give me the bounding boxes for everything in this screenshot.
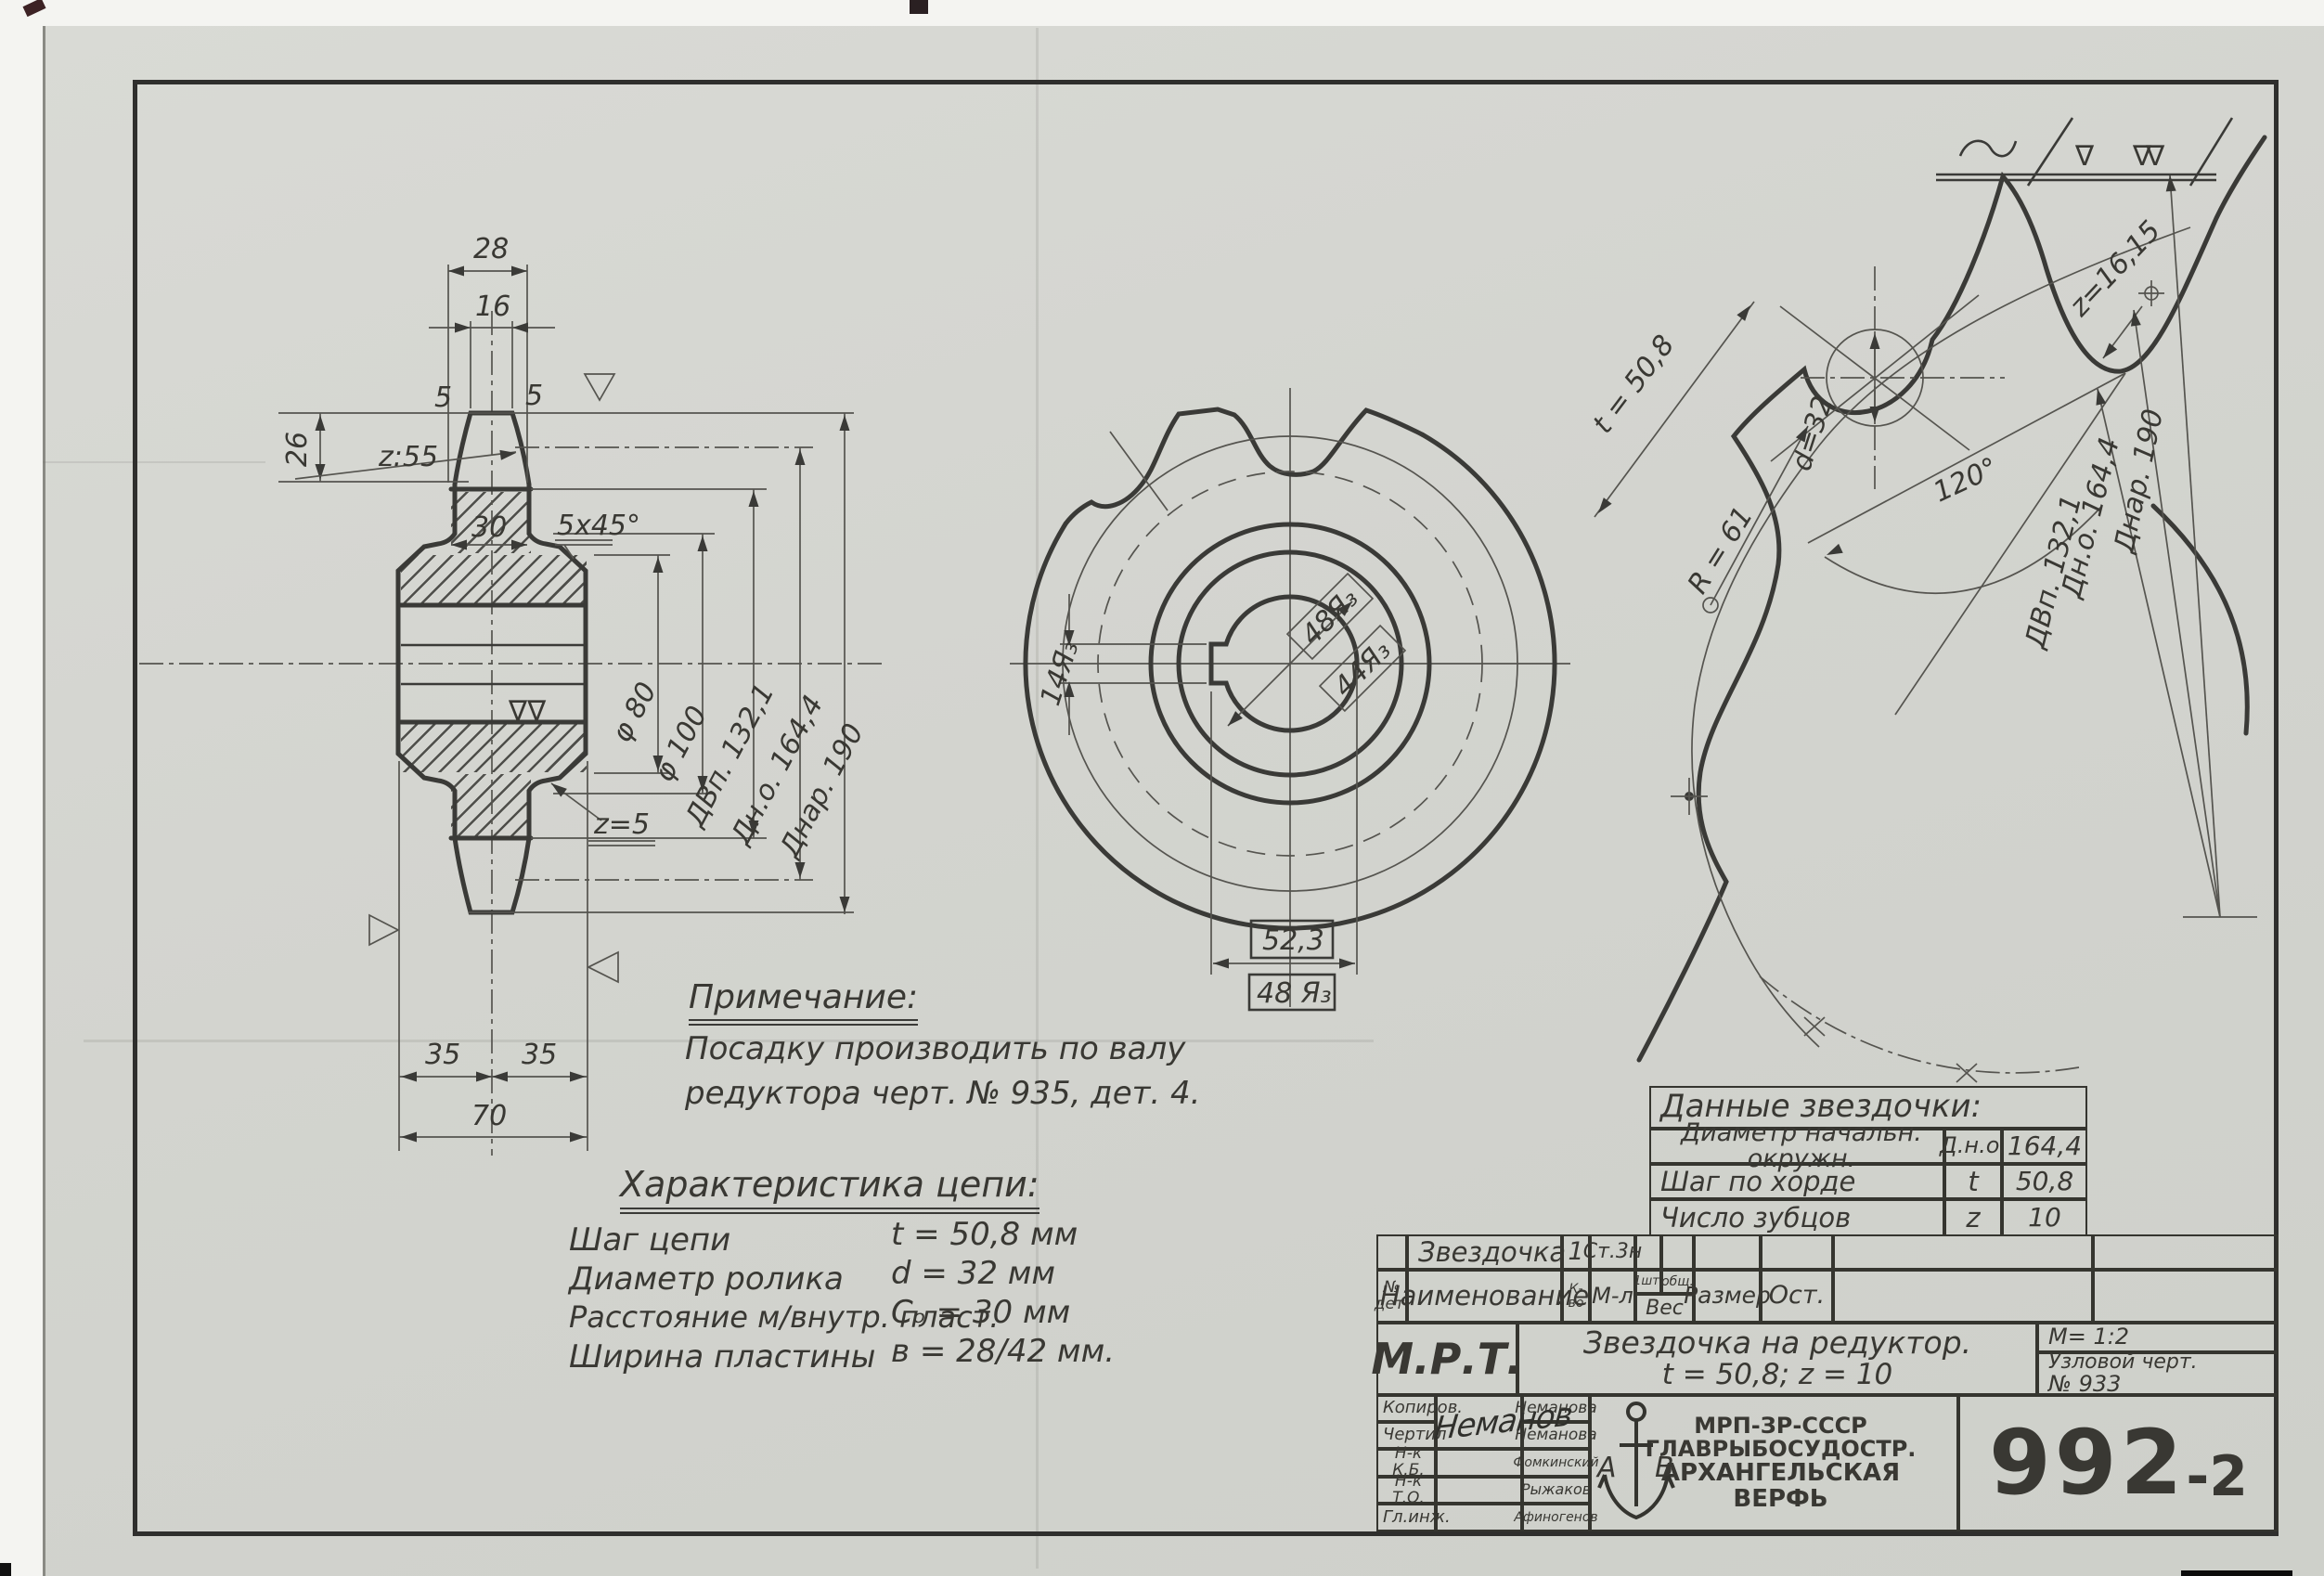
tb-number-cell: 992 -2 [1958,1395,2279,1531]
tb-cell-blank [1436,1449,1522,1477]
dim-70: 70 [471,1100,507,1132]
tb-role: Копиров. [1376,1395,1436,1422]
blueprint-sheet: 28 16 26 z:55 30 5x45° 5 5 [0,0,2324,1576]
dim-26: 26 [281,432,314,467]
corner-glyph-right: 5 [525,380,543,412]
logo-line: АРХАНГЕЛЬСКАЯ [1646,1461,1917,1486]
dim-28: 28 [473,233,509,265]
tb-name: Афиногенов [1522,1504,1590,1531]
tb-cell-blank [1694,1234,1761,1270]
dim-35-left: 35 [425,1039,460,1071]
tb-cell-blank [1833,1270,2093,1323]
tb-node-number: № 933 [2048,1373,2198,1396]
tb-part-material: Ст.3н [1590,1234,1635,1270]
bore-roughness-mark: ∇∇ [508,695,547,728]
rest-surfaces-icon [1960,141,2016,156]
tooth-profile-view: d=32 t = 50,8 R = 61 120° z=16,15 [1586,137,2265,1082]
boxed-dim-52-3: 52,3 [1262,924,1324,957]
tb-node-ref: Узловой черт. № 933 [2037,1352,2279,1395]
chain-row-label: Диаметр ролика [569,1260,844,1298]
shipyard-anchor-logo: А В [1592,1397,1681,1523]
logo-line: ГЛАВРЫБОСУДОСТР. [1646,1438,1917,1461]
logo-line: МРП-ЗР-СССР [1646,1415,1917,1438]
dim-30: 30 [471,511,507,544]
profile-dia-naruzh: Днар. 190 [2108,407,2170,558]
radius-fillet: z=5 [593,808,650,841]
note-line-1: Посадку производить по валу [685,1030,1185,1067]
tb-emblem-cell: А В МРП-ЗР-СССР ГЛАВРЫБОСУДОСТР. АРХАНГЕ… [1590,1395,1958,1531]
tb-cell-blank [1376,1234,1407,1270]
tb-cell-blank [1436,1504,1522,1531]
chain-row-value: t = 50,8 мм [891,1216,1078,1253]
tb-scale: М= 1:2 [2037,1323,2279,1352]
tb-role: Гл.инж. [1376,1504,1436,1531]
chain-row-value: Cₒ = 30 мм [891,1294,1070,1331]
chain-row-label: Ширина пластины [569,1338,875,1376]
tb-cell-blank [2093,1270,2279,1323]
tb-col-size: Размер [1694,1270,1761,1323]
chain-row-value: в = 28/42 мм. [891,1333,1115,1370]
sprocket-data-symbol: t [1944,1164,2002,1199]
chain-row-label: Шаг цепи [569,1221,730,1259]
sprocket-data-label: Шаг по хорде [1649,1164,1944,1199]
angle-label: 120° [1929,451,2003,509]
datum-triangle-right-icon [369,915,398,945]
tb-cell-blank [1436,1477,1522,1504]
dim-16: 16 [475,291,510,323]
datum-triangle-left-icon [588,952,618,982]
tb-role: Н-к Т.О. [1376,1477,1436,1504]
chain-row-value: d = 32 мм [891,1255,1055,1292]
tb-col-qty: К-во [1562,1270,1590,1323]
tb-cell-blank [1635,1234,1661,1270]
datum-triangle-down-icon [585,374,614,400]
dim-35-right: 35 [522,1039,557,1071]
tb-col-name: Наименование [1407,1270,1562,1323]
logo-line: ВЕРФЬ [1646,1487,1917,1512]
tb-col-per-item: 1шт. [1635,1270,1661,1294]
tip-radius-label: z=16,15 [2062,214,2167,323]
tb-part-name: Звездочка [1407,1234,1562,1270]
roughness-triangle: ∇ [2074,140,2095,173]
sprocket-data-value: 164,4 [2002,1129,2087,1164]
tb-name: Рыжаков [1522,1477,1590,1504]
tb-col-material: М-л [1590,1270,1635,1323]
sprocket-data-value: 10 [2002,1199,2087,1236]
logo-letter-left: А [1595,1452,1617,1484]
sprocket-data-label: Число зубцов [1649,1199,1944,1236]
roller-dia-label: d=32 [1786,392,1840,474]
logo-letter-right: В [1655,1452,1674,1484]
roughness-note: ∇ ∇∇ [1936,118,2232,186]
tb-title-line1: Звездочка на редуктор. [1583,1327,1971,1360]
chain-spec-title: Характеристика цепи: [620,1164,1039,1214]
corner-glyph-left: 5 [434,381,452,414]
tb-org: М.Р.Т. [1376,1323,1517,1395]
tb-drawing-title: Звездочка на редуктор. t = 50,8; z = 10 [1517,1323,2037,1395]
roughness-triangles: ∇∇ [2132,140,2165,173]
front-view: 14Я₃ 48Я₃ 44Я₃ 52,3 48 Я₃ [1010,388,1570,1010]
tb-cell-blank [1761,1234,1833,1270]
tb-cell-blank [1661,1234,1694,1270]
tb-cell-blank [1833,1234,2093,1270]
drawing-number: 992 [1989,1416,2186,1510]
sprocket-data-symbol: Д.н.о. [1944,1129,2002,1164]
dia-80: φ 80 [605,678,664,748]
tb-col-ost: Ост. [1761,1270,1833,1323]
keyway-dim: 14Я₃ [1034,637,1085,709]
chamfer-label: 5x45° [557,510,640,542]
tb-name: Фомкинский [1522,1449,1590,1477]
tb-node-label: Узловой черт. [2048,1351,2198,1373]
note-title: Примечание: [689,978,918,1026]
boxed-fit-48: 48 Я₃ [1257,977,1332,1010]
sprocket-data-value: 50,8 [2002,1164,2087,1199]
radius-flank: z:55 [378,441,438,473]
tb-title-line2: t = 50,8; z = 10 [1583,1360,1971,1390]
sprocket-data-label: Диаметр начальн. окружн. [1649,1129,1944,1164]
sprocket-data-symbol: z [1944,1199,2002,1236]
note-line-2: редуктора черт. № 935, дет. 4. [685,1075,1200,1112]
pitch-label: t = 50,8 [1586,329,1681,440]
tb-cell-blank [2093,1234,2279,1270]
drawing-number-suffix: -2 [2186,1448,2248,1506]
